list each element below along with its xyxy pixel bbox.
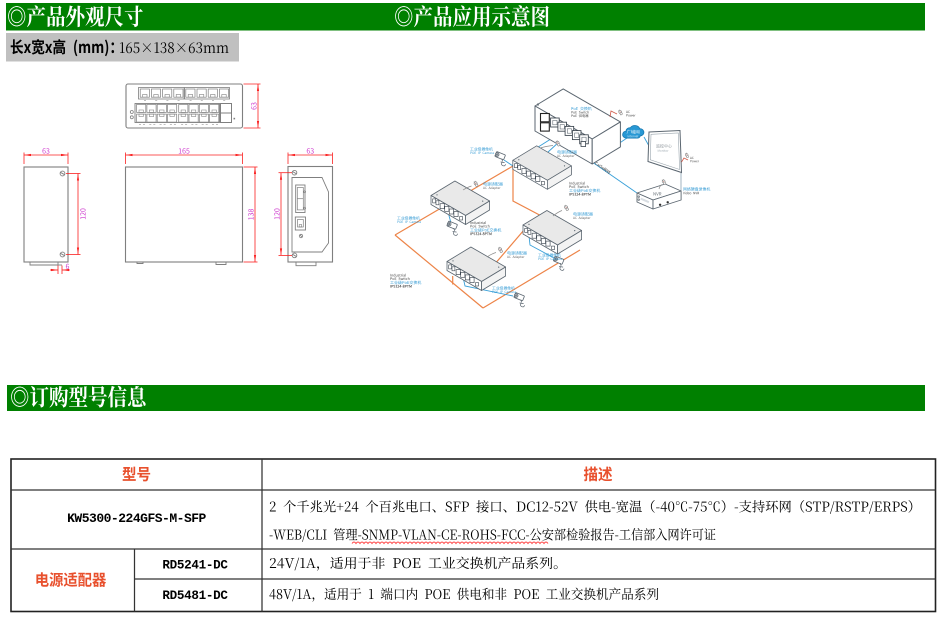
svg-text:RD5481-DC: RD5481-DC (162, 589, 228, 603)
svg-text:RD5241-DC: RD5241-DC (162, 559, 228, 573)
svg-text:KW5300-224GFS-M-SFP: KW5300-224GFS-M-SFP (67, 511, 206, 526)
